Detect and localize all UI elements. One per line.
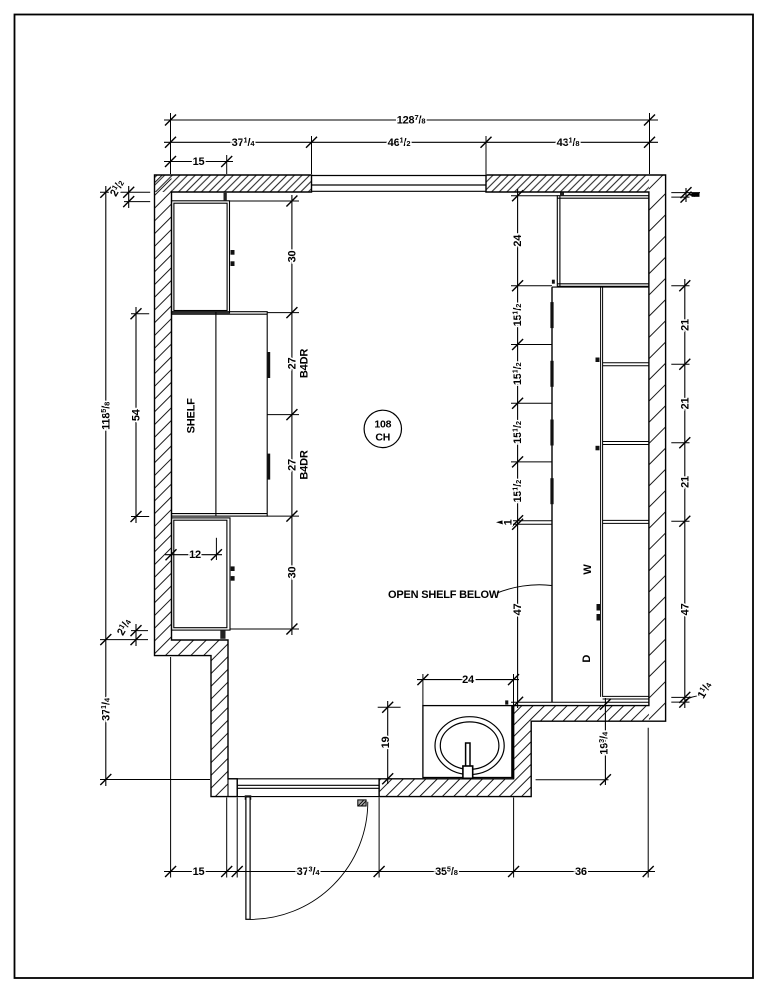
svg-text:OPEN SHELF BELOW: OPEN SHELF BELOW [388, 589, 500, 601]
svg-text:27: 27 [286, 459, 298, 471]
svg-text:30: 30 [286, 251, 298, 263]
svg-text:B4DR: B4DR [298, 349, 310, 378]
svg-text:47: 47 [679, 603, 691, 615]
svg-text:W: W [582, 564, 594, 575]
svg-text:1185/8: 1185/8 [99, 402, 112, 430]
svg-text:1287/8: 1287/8 [397, 113, 426, 126]
svg-text:15: 15 [193, 156, 205, 168]
svg-text:30: 30 [286, 567, 298, 579]
svg-text:21: 21 [679, 476, 691, 488]
svg-text:24: 24 [512, 234, 524, 247]
svg-text:108: 108 [374, 419, 391, 431]
svg-text:27: 27 [286, 358, 298, 370]
svg-text:CH: CH [375, 432, 390, 444]
svg-text:15: 15 [193, 866, 205, 878]
svg-text:B4DR: B4DR [298, 450, 310, 479]
svg-text:1: 1 [503, 519, 515, 525]
svg-text:12: 12 [189, 549, 201, 561]
svg-text:21: 21 [679, 319, 691, 331]
svg-text:21: 21 [679, 398, 691, 410]
svg-text:SHELF: SHELF [185, 398, 197, 434]
svg-text:54: 54 [131, 408, 143, 421]
svg-text:47: 47 [512, 604, 524, 616]
svg-text:D: D [581, 655, 593, 663]
svg-text:24: 24 [462, 674, 475, 686]
svg-text:19: 19 [380, 737, 392, 749]
svg-text:36: 36 [575, 866, 587, 878]
